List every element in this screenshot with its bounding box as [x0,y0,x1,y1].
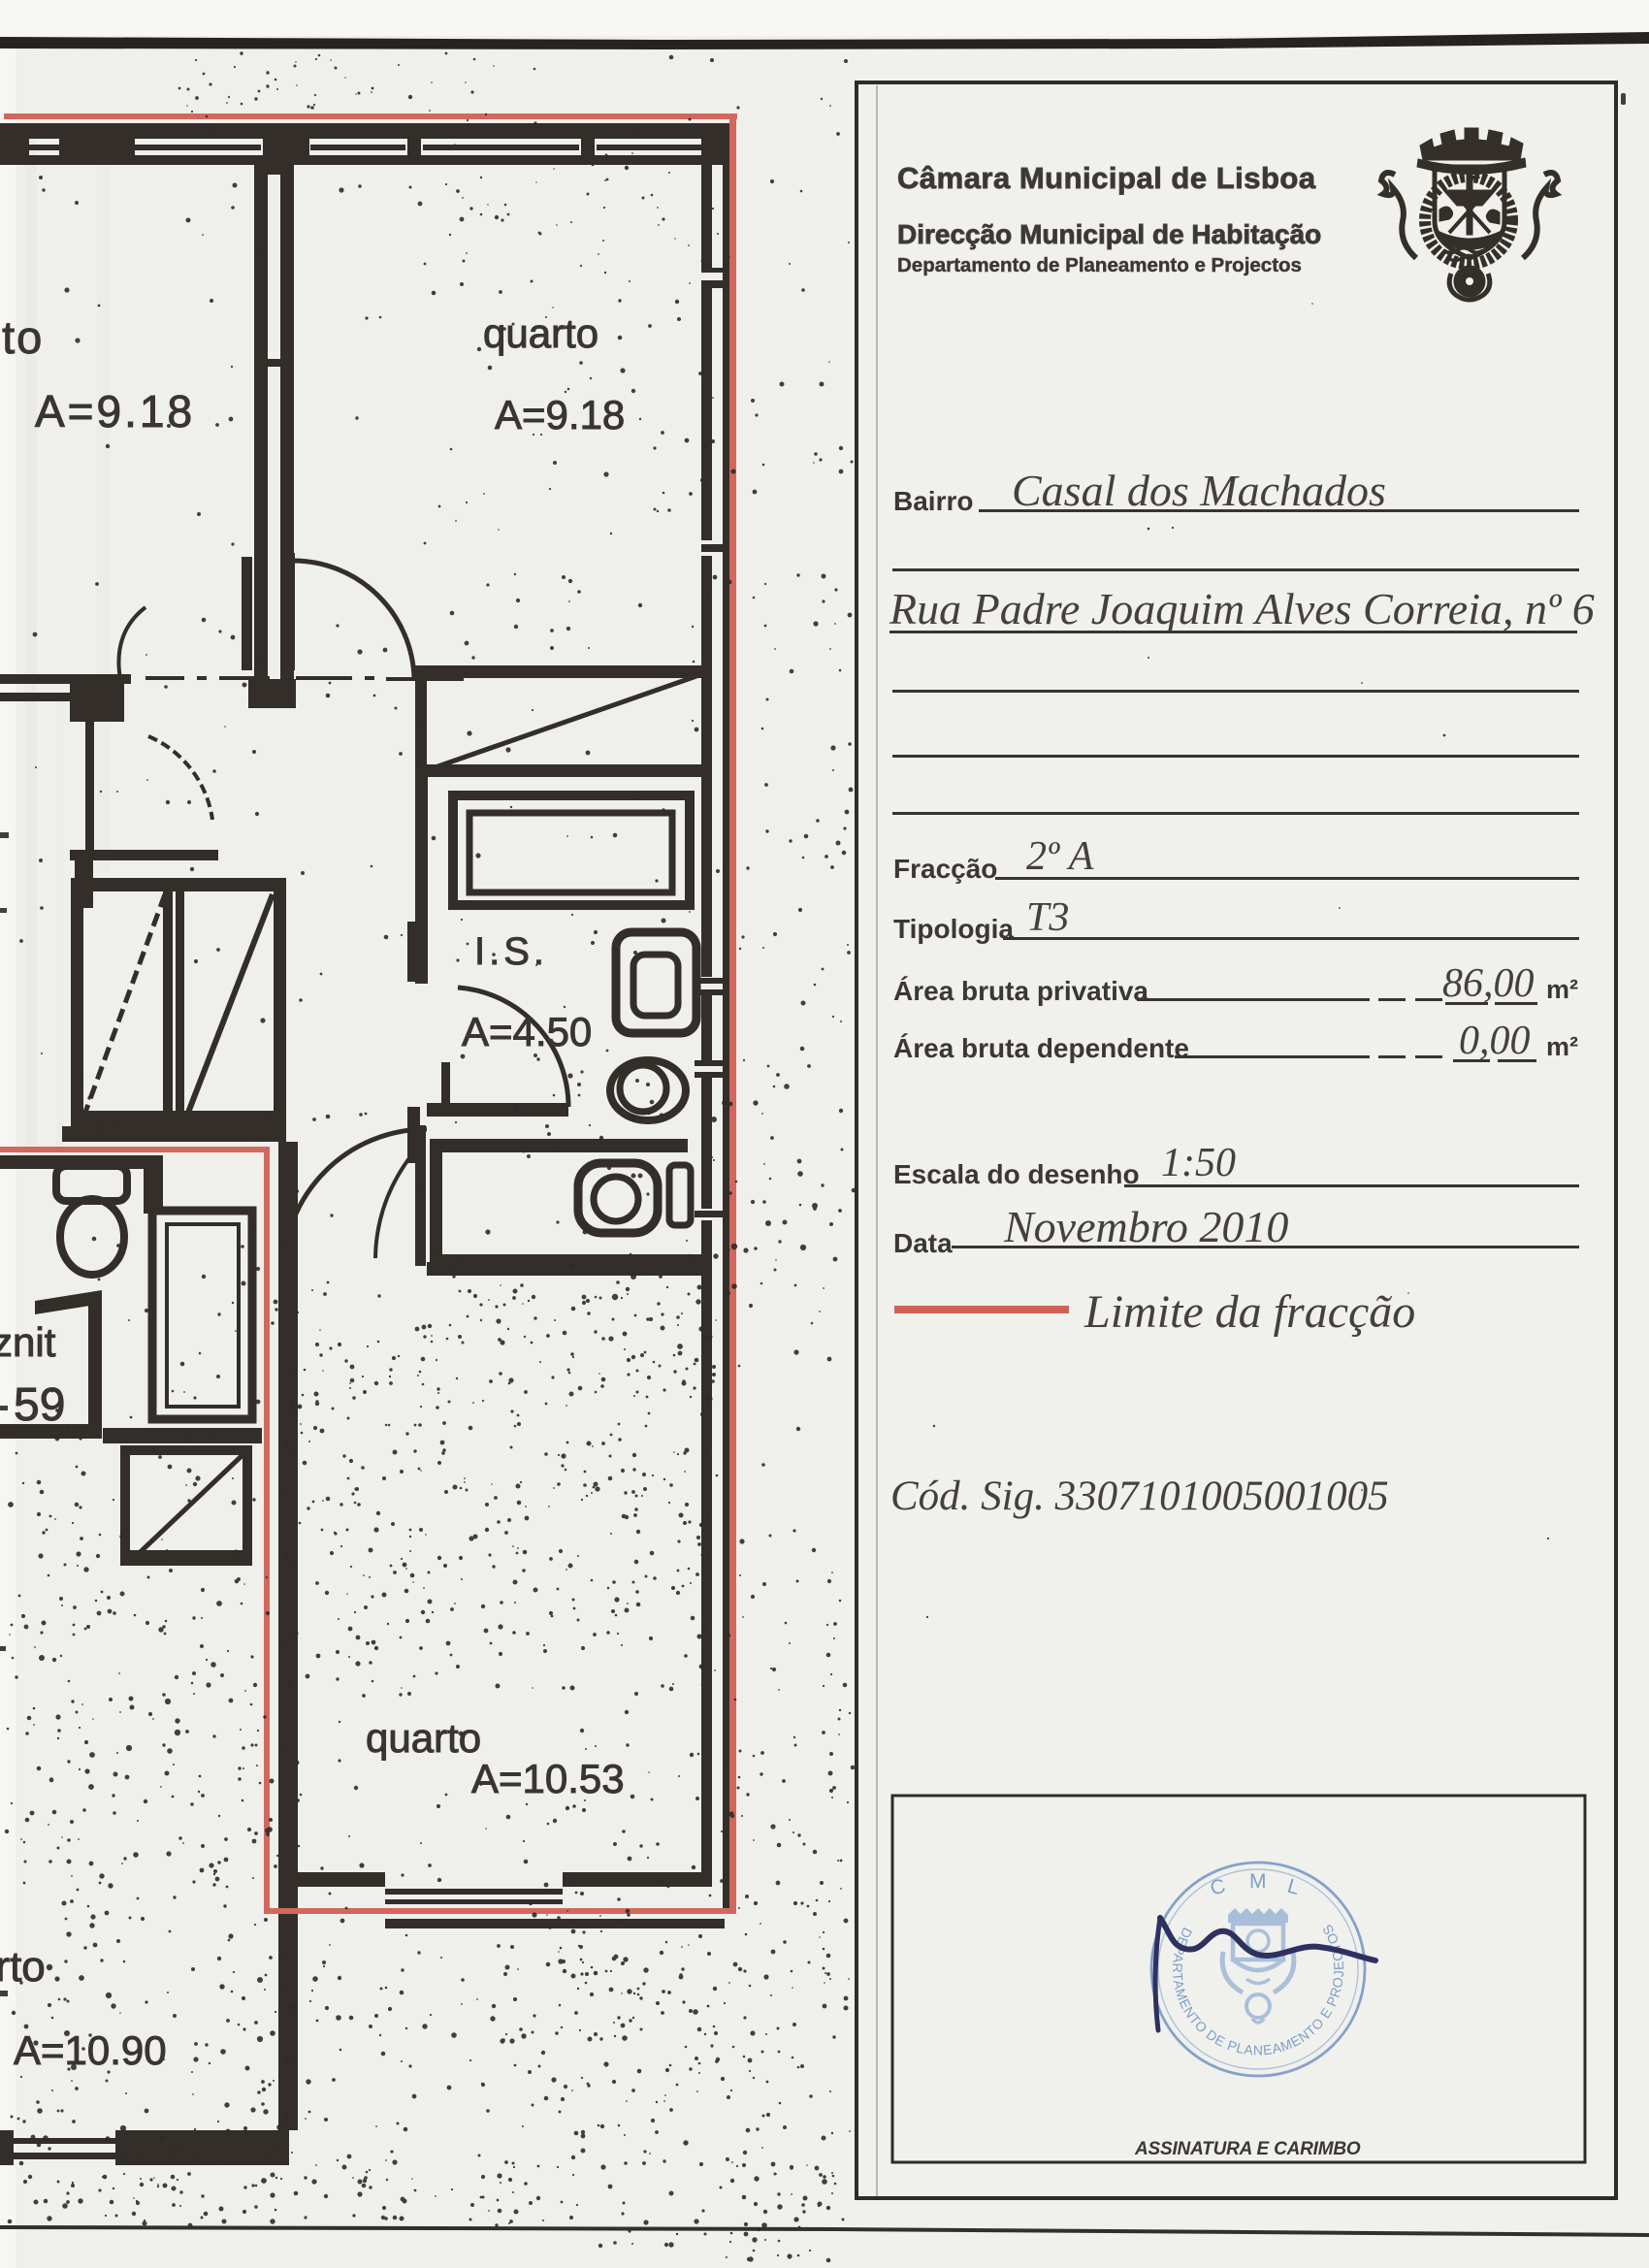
svg-text:quarto: quarto [483,310,598,356]
svg-text:Departamento de Planeamento e: Departamento de Planeamento e Projectos [897,254,1302,276]
svg-text:M: M [1249,1870,1267,1893]
svg-text:A=9.18: A=9.18 [495,392,625,437]
svg-text:Direcção Municipal de Habitaçã: Direcção Municipal de Habitação [897,219,1321,249]
svg-text:A=4.50: A=4.50 [462,1009,592,1054]
svg-text:Data: Data [893,1228,953,1258]
svg-text:ASSINATURA E CARIMBO: ASSINATURA E CARIMBO [1134,2139,1361,2159]
svg-text:Rua Padre Joaquim Alves Correi: Rua Padre Joaquim Alves Correia, nº 6 [889,584,1595,633]
svg-text:2º A: 2º A [1026,834,1094,879]
svg-text:T3: T3 [1026,895,1069,940]
svg-text:0,00: 0,00 [1459,1019,1531,1063]
svg-text:59: 59 [14,1379,65,1431]
svg-text:Bairro: Bairro [893,486,973,516]
svg-text:quarto: quarto [0,311,44,363]
svg-text:A=10.53: A=10.53 [471,1756,625,1801]
svg-text:Novembro 2010: Novembro 2010 [1003,1202,1288,1251]
svg-text:Cód. Sig. 3307101005001005: Cód. Sig. 3307101005001005 [890,1474,1389,1519]
svg-text:Tipologia: Tipologia [893,914,1014,944]
svg-text:Limite da fracção: Limite da fracção [1083,1286,1415,1338]
svg-text:znit: znit [0,1319,56,1365]
svg-text:Câmara Municipal de Lisboa: Câmara Municipal de Lisboa [897,161,1316,195]
svg-text:I.S.: I.S. [474,930,548,973]
svg-text:Área bruta dependente: Área bruta dependente [893,1033,1189,1063]
svg-text:A=9.18: A=9.18 [35,386,195,437]
svg-text:Escala do desenho: Escala do desenho [893,1159,1140,1189]
svg-text:quarto: quarto [366,1715,481,1761]
svg-text:Área bruta privativa: Área bruta privativa [893,976,1148,1006]
svg-text:m²: m² [1546,975,1578,1004]
svg-text:86,00: 86,00 [1442,961,1535,1006]
svg-text:m²: m² [1546,1032,1578,1061]
svg-text:Casal dos Machados: Casal dos Machados [1012,466,1386,515]
svg-text:1:50: 1:50 [1161,1141,1236,1185]
svg-text:Fracção: Fracção [893,854,997,884]
